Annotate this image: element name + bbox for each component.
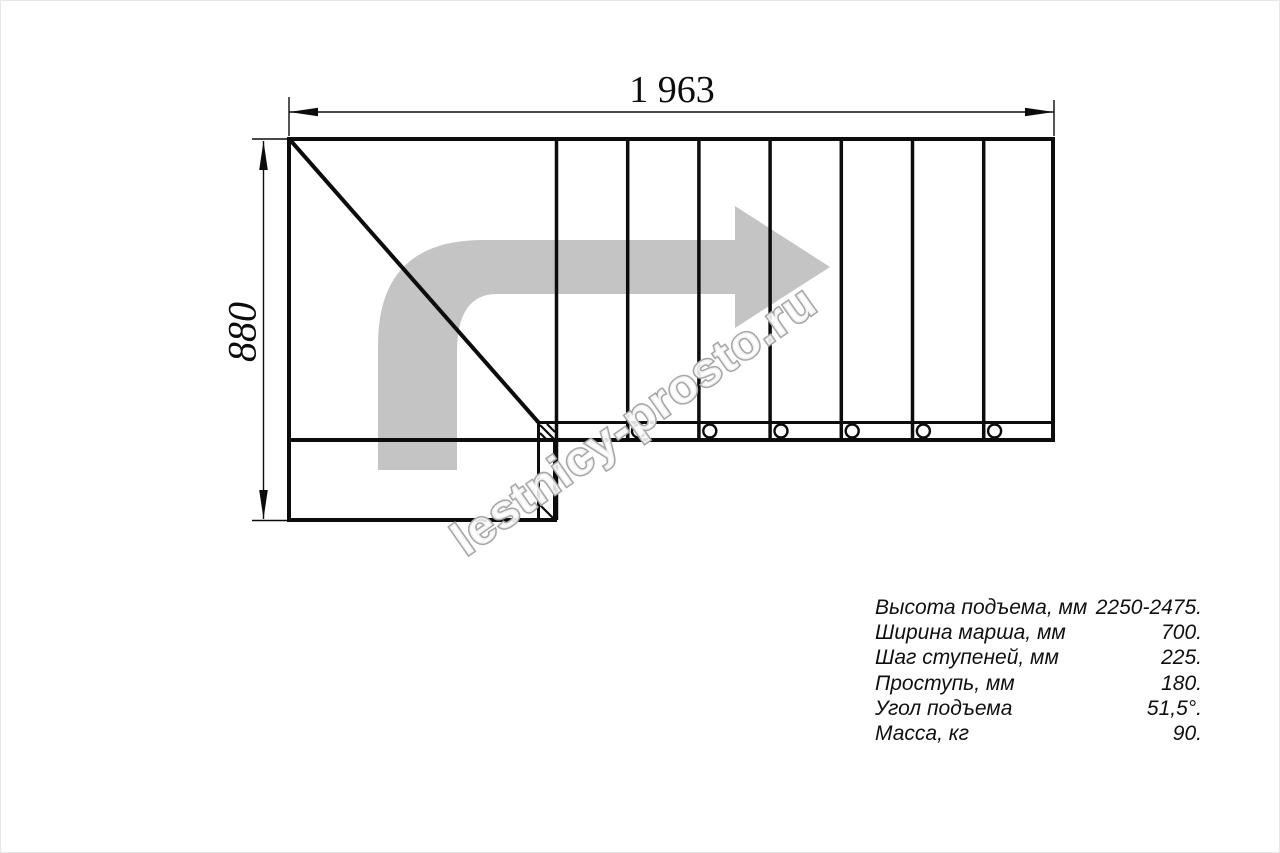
spec-value: 225.	[1161, 645, 1202, 670]
spec-label: Масса, кг	[875, 721, 969, 746]
spec-value: 90.	[1173, 721, 1202, 746]
baluster-circle	[988, 425, 1001, 438]
spec-label: Проступь, мм	[875, 671, 1015, 696]
baluster-circle	[846, 425, 859, 438]
spec-row: Ширина марша, мм 700.	[875, 620, 1202, 645]
spec-value: 2250-2475.	[1096, 595, 1202, 620]
spec-row: Угол подъема 51,5°.	[875, 696, 1202, 721]
spec-label: Угол подъема	[875, 696, 1012, 721]
height-dimension-label: 880	[220, 302, 265, 362]
spec-row: Высота подъема, мм 2250-2475.	[875, 595, 1202, 620]
watermark-text: lestnicy-prosto.ru	[441, 274, 825, 565]
height-dimension: 880	[220, 139, 294, 521]
spec-label: Высота подъема, мм	[875, 595, 1087, 620]
spec-row: Масса, кг 90.	[875, 721, 1202, 746]
spec-row: Проступь, мм 180.	[875, 671, 1202, 696]
spec-label: Ширина марша, мм	[875, 620, 1066, 645]
baluster-circles	[632, 425, 1001, 438]
spec-label: Шаг ступеней, мм	[875, 645, 1059, 670]
spec-value: 51,5°.	[1147, 696, 1202, 721]
spec-value: 700.	[1161, 620, 1202, 645]
spec-value: 180.	[1161, 671, 1202, 696]
baluster-circle	[703, 425, 716, 438]
width-dimension-label: 1 963	[629, 69, 715, 111]
width-dimension: 1 963	[289, 69, 1054, 136]
staircase-plan-page: 1 963 880 lestnicy-prosto.ru Высота подъ…	[0, 0, 1280, 853]
baluster-circle	[917, 425, 930, 438]
specs-table: Высота подъема, мм 2250-2475. Ширина мар…	[875, 595, 1202, 746]
spec-row: Шаг ступеней, мм 225.	[875, 645, 1202, 670]
baluster-circle	[775, 425, 788, 438]
